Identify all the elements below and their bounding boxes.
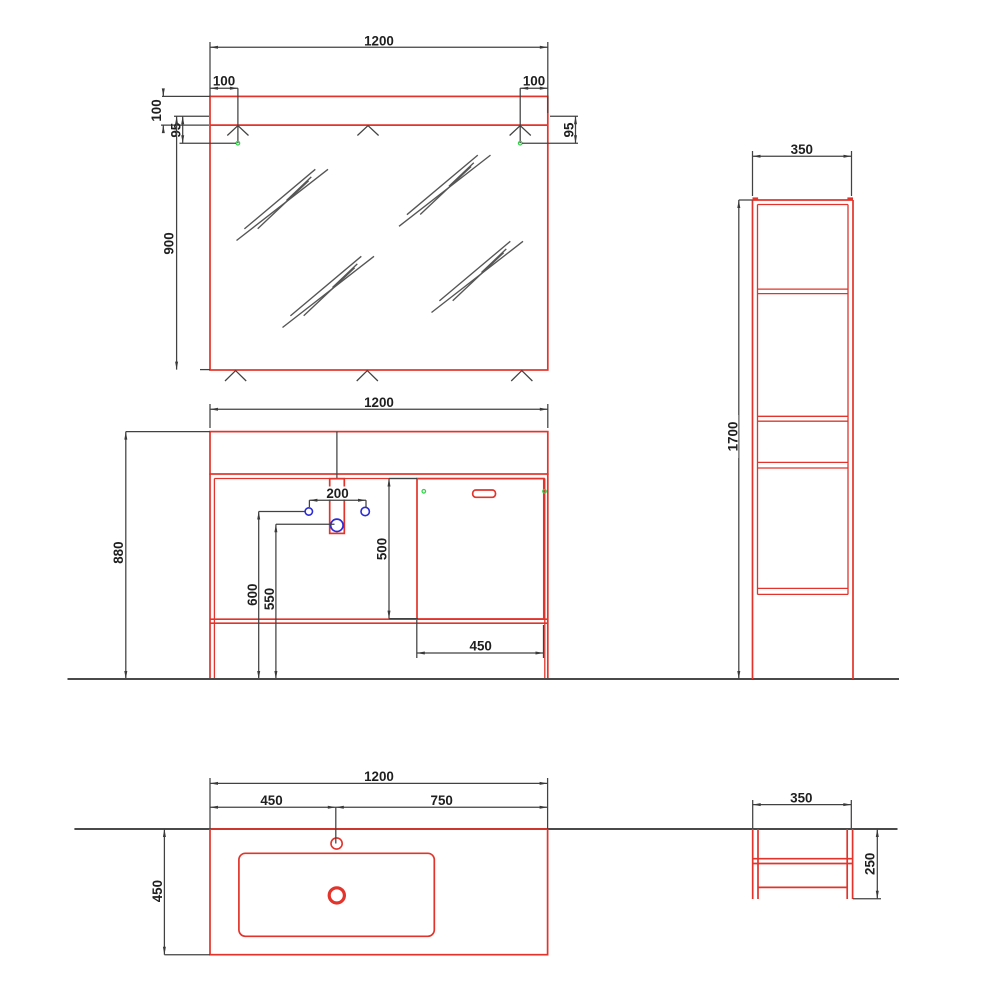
svg-text:600: 600 (245, 584, 260, 606)
svg-text:1200: 1200 (364, 33, 394, 48)
svg-text:500: 500 (374, 538, 389, 560)
svg-text:1200: 1200 (364, 395, 394, 410)
svg-text:750: 750 (431, 793, 453, 808)
svg-text:550: 550 (262, 588, 277, 610)
svg-text:880: 880 (111, 541, 126, 563)
svg-text:100: 100 (213, 74, 235, 89)
svg-text:350: 350 (790, 790, 812, 805)
svg-text:1700: 1700 (725, 422, 740, 452)
svg-text:95: 95 (562, 122, 577, 137)
svg-text:1200: 1200 (364, 769, 394, 784)
svg-text:350: 350 (791, 142, 813, 157)
svg-text:250: 250 (862, 853, 877, 875)
svg-text:900: 900 (161, 232, 176, 254)
svg-text:450: 450 (470, 639, 492, 654)
svg-text:450: 450 (150, 880, 165, 902)
svg-text:200: 200 (326, 486, 348, 501)
svg-text:450: 450 (260, 793, 282, 808)
svg-text:100: 100 (523, 74, 545, 89)
svg-text:100: 100 (149, 99, 164, 121)
